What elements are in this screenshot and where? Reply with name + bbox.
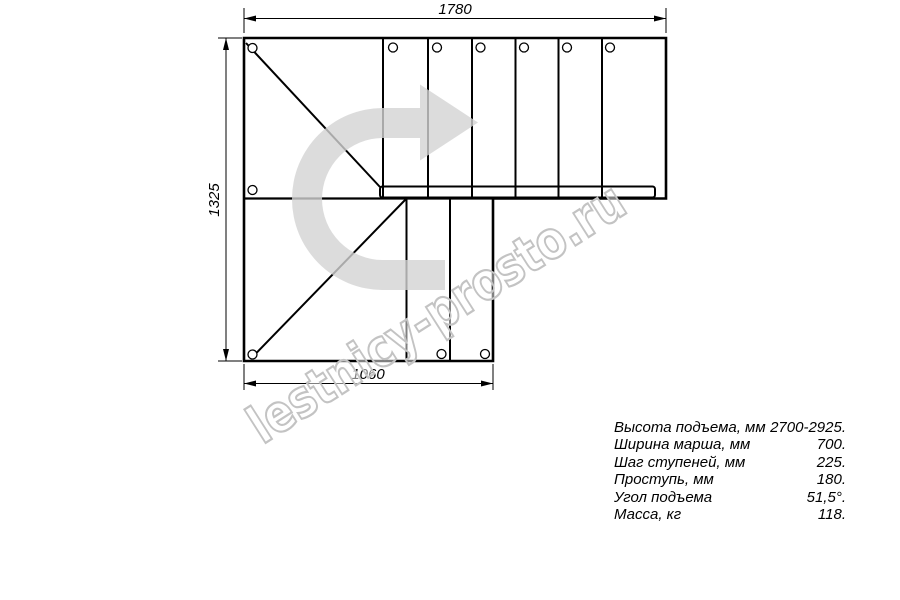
mount-hole [248, 350, 257, 359]
mount-hole [437, 350, 446, 359]
spec-label: Масса, кг [614, 506, 681, 523]
mount-hole [248, 186, 257, 195]
dimension-top-label: 1780 [438, 1, 472, 18]
dimension-left: 1325 [206, 38, 242, 361]
spec-label: Шаг ступеней, мм [614, 454, 745, 471]
dimension-top: 1780 [244, 1, 666, 33]
spec-value: 2700-2925. [770, 419, 846, 436]
specs-table: Высота подъема, мм 2700-2925. Ширина мар… [614, 419, 846, 523]
blueprint-canvas: 1780 1325 1060 lestnicy-prosto.ru Высота… [0, 0, 900, 600]
mount-hole [520, 43, 529, 52]
spec-value: 118. [818, 506, 846, 523]
dimension-left-label: 1325 [206, 183, 223, 217]
spec-label: Проступь, мм [614, 471, 714, 488]
spec-row-step-pitch: Шаг ступеней, мм 225. [614, 454, 846, 471]
spec-label: Ширина марша, мм [614, 436, 750, 453]
mount-hole [481, 350, 490, 359]
spec-row-flight-width: Ширина марша, мм 700. [614, 436, 846, 453]
spec-value: 700. [817, 436, 846, 453]
mount-hole [606, 43, 615, 52]
spec-value: 225. [817, 454, 846, 471]
spec-value: 180. [817, 471, 846, 488]
mount-hole [389, 43, 398, 52]
spec-row-mass: Масса, кг 118. [614, 506, 846, 523]
spec-row-tread: Проступь, мм 180. [614, 471, 846, 488]
spec-value: 51,5°. [807, 489, 846, 506]
mount-hole [476, 43, 485, 52]
spec-row-height: Высота подъема, мм 2700-2925. [614, 419, 846, 436]
spec-label: Угол подъема [614, 489, 712, 506]
mount-hole [433, 43, 442, 52]
spec-label: Высота подъема, мм [614, 419, 766, 436]
mount-hole [248, 44, 257, 53]
mount-hole [563, 43, 572, 52]
spec-row-angle: Угол подъема 51,5°. [614, 489, 846, 506]
